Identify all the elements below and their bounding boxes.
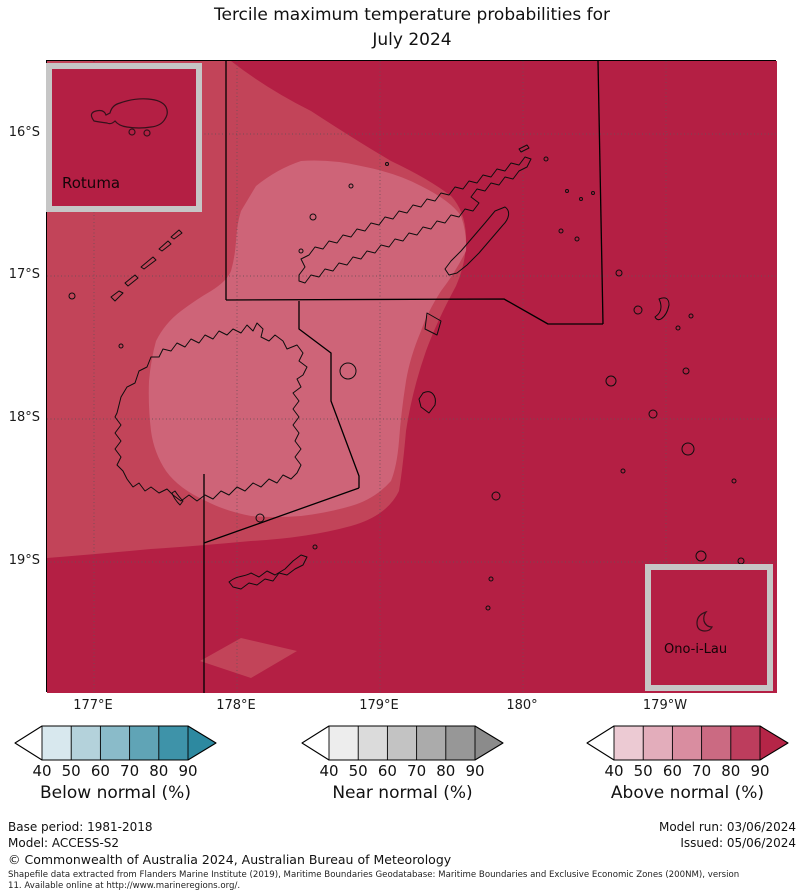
lat-tick-label: 16°S (0, 124, 40, 142)
copyright-text: © Commonwealth of Australia 2024, Austra… (8, 852, 451, 867)
attribution-text: Shapefile data extracted from Flanders M… (8, 870, 800, 892)
below-scale-caption: Below normal (%) (12, 783, 219, 803)
above-scale-tick: 70 (692, 762, 711, 780)
lat-tick-label: 19°S (0, 552, 40, 570)
chart-title: Tercile maximum temperature probabilitie… (46, 3, 778, 52)
probability-map: Rotuma Ono-i-Lau (46, 60, 776, 692)
legend-above-normal: 405060708090Above normal (%) (584, 723, 796, 811)
near-scale-tick: 40 (319, 762, 338, 780)
inset-ono-i-lau-label: Ono-i-Lau (664, 642, 727, 657)
model-run-text: Model run: 03/06/2024 (659, 820, 796, 834)
chart-title-line1: Tercile maximum temperature probabilitie… (46, 3, 778, 28)
below-scale-tick: 90 (178, 762, 197, 780)
above-scale-arrow (584, 723, 792, 762)
above-scale-tick: 60 (663, 762, 682, 780)
lon-tick-label: 180° (506, 698, 537, 713)
base-period-text: Base period: 1981-2018 (8, 820, 153, 834)
above-scale-tick: 50 (634, 762, 653, 780)
inset-ono-i-lau: Ono-i-Lau (645, 564, 773, 691)
near-scale-tick: 90 (465, 762, 484, 780)
lon-tick-label: 178°E (216, 698, 256, 713)
below-scale-tick: 50 (62, 762, 81, 780)
page: { "title": { "line1": "Tercile maximum t… (0, 0, 804, 896)
ono-i-lau-island (697, 612, 712, 631)
lat-tick-label: 18°S (0, 409, 40, 427)
inset-rotuma: Rotuma (46, 63, 202, 212)
legend-below-normal: 405060708090Below normal (%) (12, 723, 224, 811)
ono-i-lau-island-map (651, 570, 767, 685)
legend-near-normal: 405060708090Near normal (%) (299, 723, 511, 811)
near-scale-caption: Near normal (%) (299, 783, 506, 803)
near-scale-tick: 50 (349, 762, 368, 780)
chart-title-line2: July 2024 (46, 28, 778, 53)
near-scale-arrow (299, 723, 507, 762)
lat-tick-label: 17°S (0, 266, 40, 284)
near-scale-tick: 70 (407, 762, 426, 780)
below-scale-tick: 40 (32, 762, 51, 780)
lon-tick-label: 177°E (73, 698, 113, 713)
near-scale-tick: 60 (378, 762, 397, 780)
lon-tick-label: 179°W (643, 698, 687, 713)
above-scale-tick: 40 (604, 762, 623, 780)
rotuma-island (91, 99, 167, 128)
above-scale-tick: 80 (721, 762, 740, 780)
attribution-line2: 11. Available online at http://www.marin… (8, 881, 800, 892)
above-scale-caption: Above normal (%) (584, 783, 791, 803)
below-scale-tick: 60 (91, 762, 110, 780)
lon-tick-label: 179°E (359, 698, 399, 713)
near-scale-tick: 80 (436, 762, 455, 780)
model-text: Model: ACCESS-S2 (8, 836, 119, 850)
attribution-line1: Shapefile data extracted from Flanders M… (8, 870, 800, 881)
below-scale-tick: 70 (120, 762, 139, 780)
below-scale-arrow (12, 723, 220, 762)
inset-rotuma-label: Rotuma (62, 174, 120, 192)
above-scale-tick: 90 (750, 762, 769, 780)
issued-text: Issued: 05/06/2024 (680, 836, 796, 850)
below-scale-tick: 80 (149, 762, 168, 780)
